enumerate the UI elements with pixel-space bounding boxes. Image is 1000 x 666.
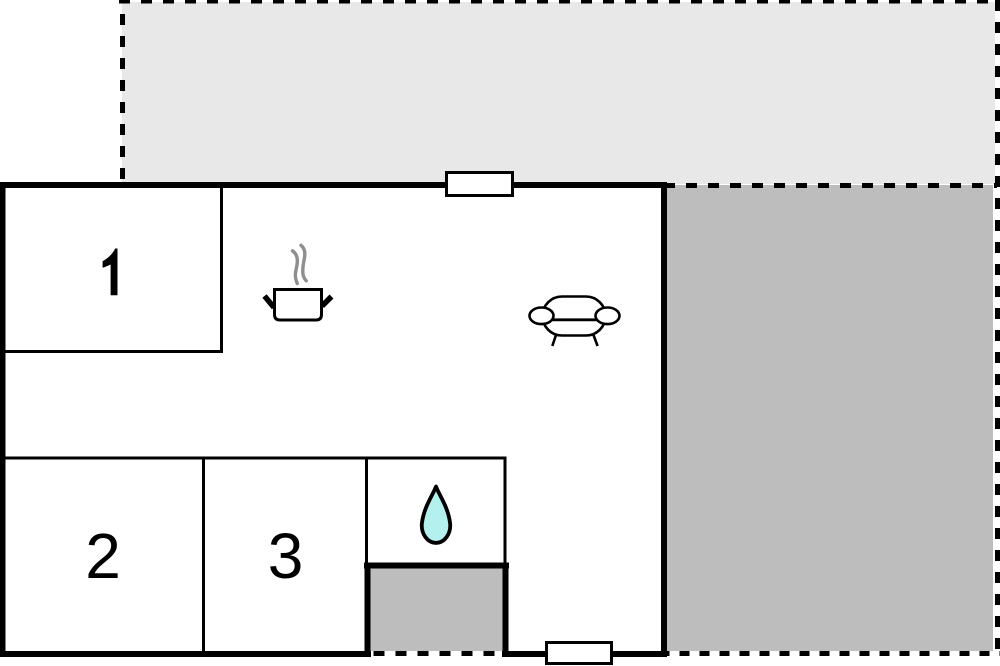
svg-text:2: 2 — [85, 520, 121, 592]
svg-text:3: 3 — [268, 520, 304, 592]
